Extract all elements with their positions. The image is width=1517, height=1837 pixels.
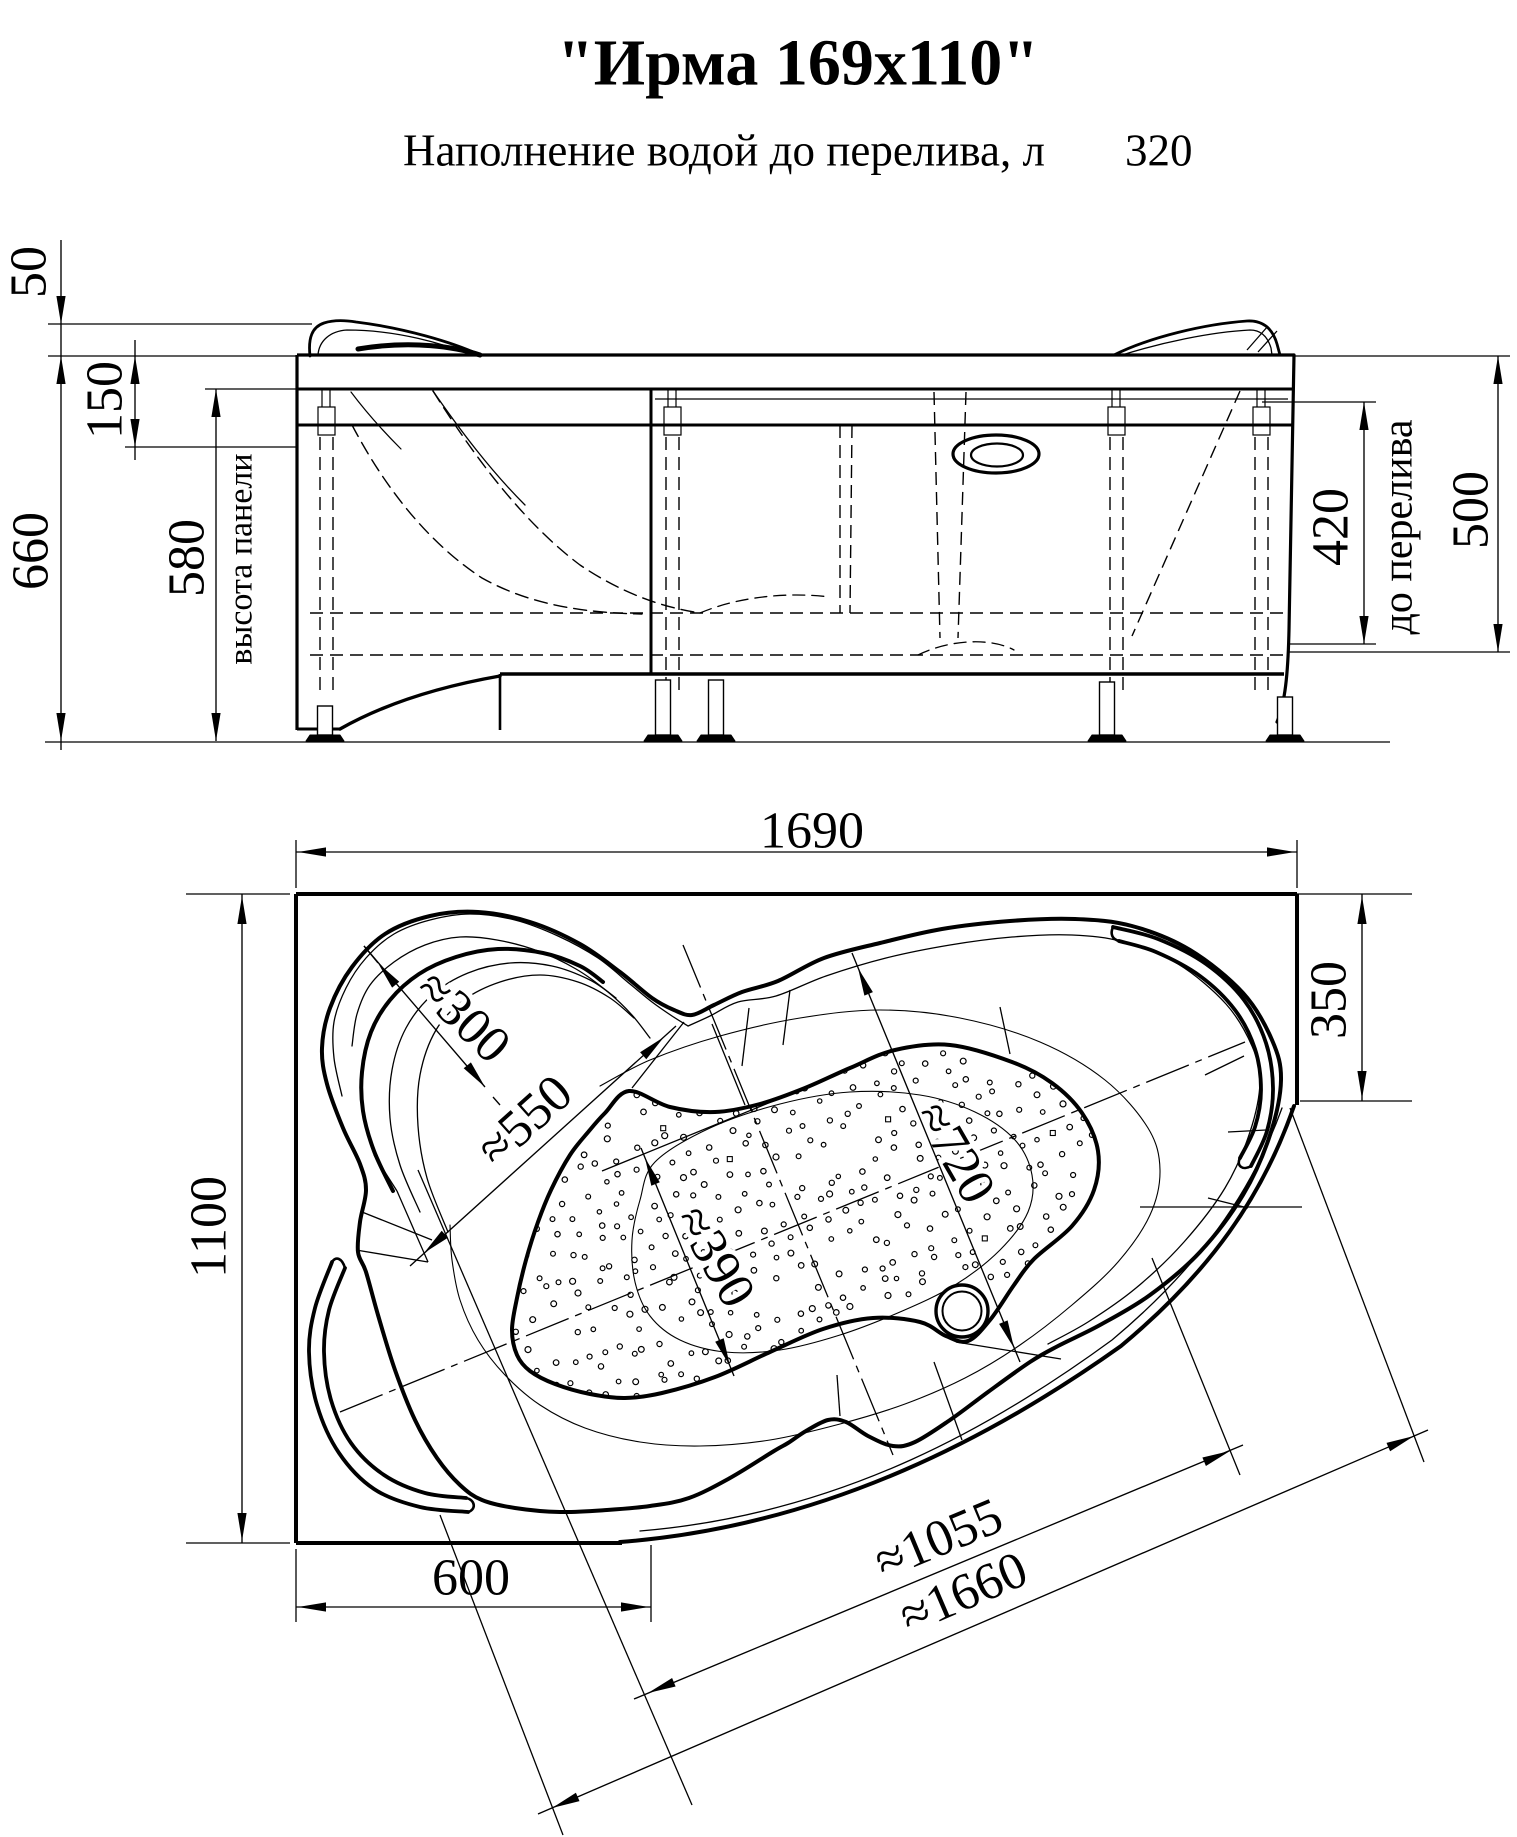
svg-text:Наполнение водой до перелива,: Наполнение водой до перелива, л [403, 125, 1045, 175]
svg-text:420: 420 [1303, 488, 1360, 566]
svg-text:высота панели: высота панели [223, 453, 260, 664]
svg-text:до перелива: до перелива [1375, 419, 1421, 634]
svg-text:580: 580 [159, 519, 216, 597]
svg-text:50: 50 [1, 246, 58, 298]
svg-text:350: 350 [1301, 961, 1358, 1039]
svg-text:150: 150 [77, 361, 134, 439]
svg-text:500: 500 [1443, 471, 1500, 549]
svg-text:660: 660 [3, 512, 60, 590]
svg-text:1100: 1100 [181, 1176, 238, 1278]
svg-text:1690: 1690 [760, 803, 864, 860]
svg-text:320: 320 [1125, 125, 1193, 175]
svg-text:"Ирма 169х110": "Ирма 169х110" [557, 26, 1039, 99]
svg-text:600: 600 [432, 1550, 510, 1607]
